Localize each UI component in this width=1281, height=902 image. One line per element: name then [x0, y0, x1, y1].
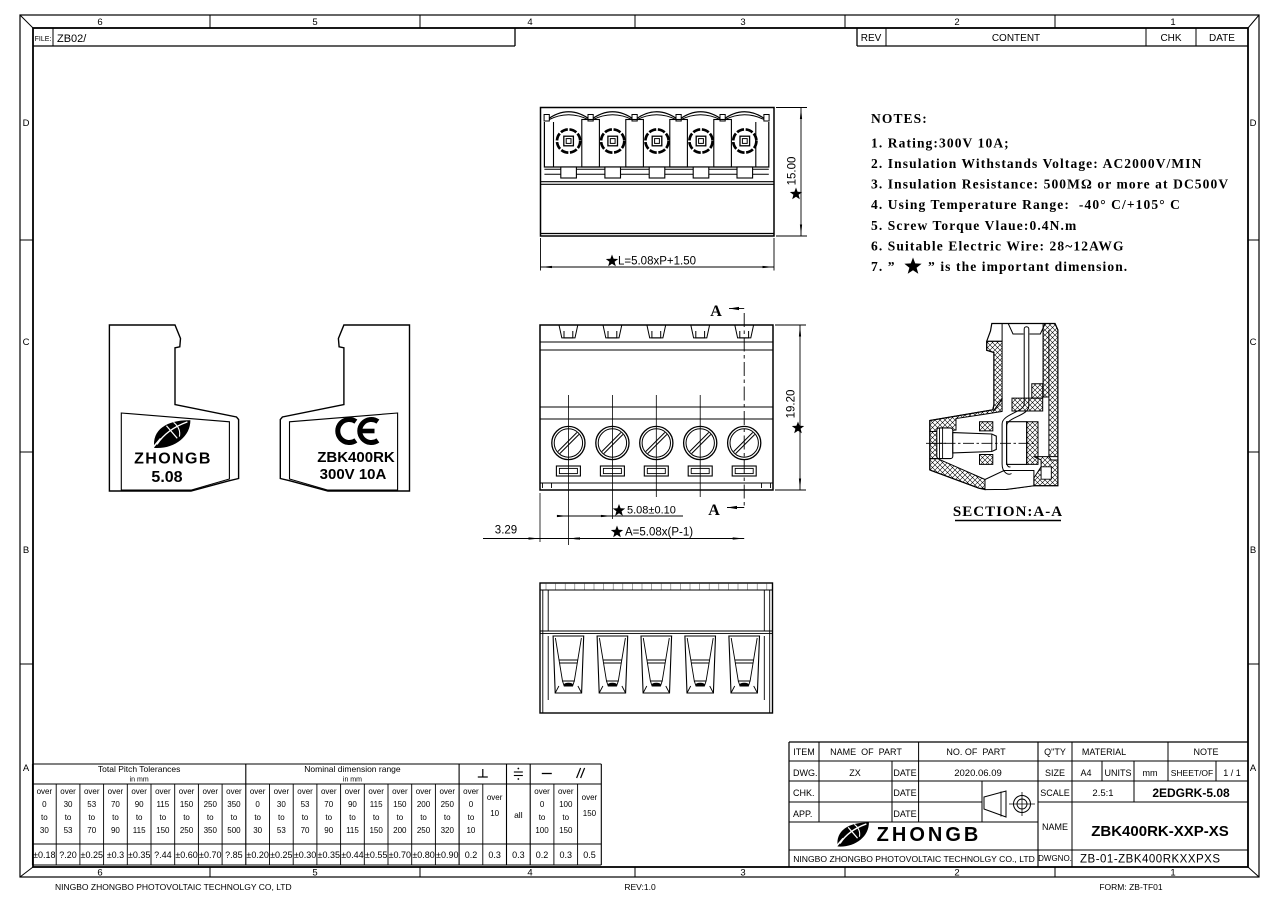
- svg-text:±0.30: ±0.30: [294, 850, 316, 860]
- svg-text:to: to: [231, 813, 238, 822]
- svg-text:A: A: [708, 502, 720, 519]
- svg-text:?.44: ?.44: [154, 850, 172, 860]
- svg-text:70: 70: [324, 800, 333, 809]
- svg-text:0.2: 0.2: [465, 850, 478, 860]
- svg-text:0: 0: [469, 800, 474, 809]
- svg-text:±0.90: ±0.90: [436, 850, 458, 860]
- svg-text:in mm: in mm: [343, 777, 362, 784]
- svg-text:DATE: DATE: [1209, 33, 1235, 44]
- svg-text:±0.3: ±0.3: [107, 850, 124, 860]
- svg-text:3: 3: [740, 868, 745, 879]
- svg-text:D: D: [23, 118, 30, 129]
- svg-text:ITEM: ITEM: [793, 747, 815, 757]
- svg-text:C: C: [23, 337, 30, 348]
- svg-text:53: 53: [277, 826, 286, 835]
- svg-text:53: 53: [301, 800, 310, 809]
- svg-text:to: to: [397, 813, 404, 822]
- svg-text:in mm: in mm: [130, 777, 149, 784]
- svg-text:350: 350: [204, 826, 218, 835]
- svg-text:to: to: [112, 813, 119, 822]
- svg-text:500: 500: [227, 826, 241, 835]
- svg-text:2. Insulation Withstands Volta: 2. Insulation Withstands Voltage: AC2000…: [871, 156, 1202, 171]
- svg-text:Total Pitch Tolerances: Total Pitch Tolerances: [98, 764, 181, 774]
- svg-text:to: to: [278, 813, 285, 822]
- svg-text:over: over: [463, 787, 479, 796]
- svg-text:mm: mm: [1143, 768, 1158, 778]
- svg-text:5.08: 5.08: [151, 469, 182, 486]
- svg-text:over: over: [60, 787, 76, 796]
- svg-text:to: to: [420, 813, 427, 822]
- svg-text:over: over: [345, 787, 361, 796]
- svg-text:over: over: [368, 787, 384, 796]
- svg-text:to: to: [373, 813, 380, 822]
- svg-text:300V 10A: 300V 10A: [320, 466, 387, 483]
- svg-text:to: to: [160, 813, 167, 822]
- svg-text:0.2: 0.2: [536, 850, 549, 860]
- svg-text:ZX: ZX: [849, 768, 861, 778]
- svg-text:L=5.08xP+1.50: L=5.08xP+1.50: [618, 256, 696, 268]
- svg-text:1: 1: [1170, 17, 1175, 28]
- svg-text:over: over: [108, 787, 124, 796]
- svg-text:NINGBO ZHONGBO PHOTOVOLTAIC TE: NINGBO ZHONGBO PHOTOVOLTAIC TECHNOLGY CO…: [793, 854, 1035, 864]
- svg-text:to: to: [562, 813, 569, 822]
- svg-text:to: to: [41, 813, 48, 822]
- svg-text:70: 70: [87, 826, 96, 835]
- svg-text:DATE: DATE: [893, 788, 916, 798]
- svg-text:320: 320: [441, 826, 455, 835]
- svg-text:5. Screw Torque Vlaue:0.4N.m: 5. Screw Torque Vlaue:0.4N.m: [871, 218, 1077, 233]
- svg-text:90: 90: [111, 826, 120, 835]
- svg-text:ZBK400RK: ZBK400RK: [317, 449, 395, 466]
- svg-text:6: 6: [97, 17, 102, 28]
- svg-text:over: over: [439, 787, 455, 796]
- svg-text:to: to: [65, 813, 72, 822]
- svg-text:CHK.: CHK.: [793, 788, 815, 798]
- svg-text:5.08±0.10: 5.08±0.10: [627, 505, 676, 517]
- svg-text:B: B: [1250, 545, 1256, 556]
- svg-text:A: A: [23, 763, 30, 774]
- svg-text:to: to: [302, 813, 309, 822]
- svg-text:350: 350: [227, 800, 241, 809]
- svg-text:D: D: [1250, 118, 1257, 129]
- svg-text:±0.35: ±0.35: [128, 850, 150, 860]
- svg-text:to: to: [325, 813, 332, 822]
- svg-text:Nominal dimension range: Nominal dimension range: [304, 764, 401, 774]
- svg-text:0.5: 0.5: [583, 850, 596, 860]
- svg-text:30: 30: [40, 826, 49, 835]
- svg-text:over: over: [297, 787, 313, 796]
- svg-text:ZHONGB: ZHONGB: [134, 451, 212, 468]
- svg-text:A: A: [1250, 763, 1257, 774]
- svg-text:REV: REV: [861, 33, 882, 44]
- svg-text:90: 90: [324, 826, 333, 835]
- svg-text:150: 150: [583, 809, 597, 818]
- svg-text:150: 150: [180, 800, 194, 809]
- svg-text:over: over: [274, 787, 290, 796]
- svg-text:10: 10: [466, 826, 475, 835]
- svg-text:to: to: [444, 813, 451, 822]
- svg-text:2.5:1: 2.5:1: [1092, 788, 1113, 799]
- svg-text:A4: A4: [1080, 768, 1091, 778]
- svg-text:±0.80: ±0.80: [412, 850, 434, 860]
- svg-text:NAME OF PART: NAME OF PART: [830, 747, 902, 757]
- svg-text:SIZE: SIZE: [1045, 768, 1065, 778]
- svg-text:19.20: 19.20: [786, 390, 798, 419]
- svg-text:ZB02/: ZB02/: [57, 33, 87, 45]
- svg-text:APP.: APP.: [793, 809, 812, 819]
- svg-text:115: 115: [133, 826, 146, 835]
- svg-text:B: B: [23, 545, 29, 556]
- svg-text:30: 30: [64, 800, 73, 809]
- svg-text:115: 115: [346, 826, 359, 835]
- svg-text:3.29: 3.29: [495, 525, 517, 537]
- svg-text:±0.18: ±0.18: [33, 850, 55, 860]
- svg-text:DWGNO.: DWGNO.: [1038, 854, 1072, 863]
- svg-text:150: 150: [369, 826, 383, 835]
- svg-text:53: 53: [64, 826, 73, 835]
- svg-text:to: to: [539, 813, 546, 822]
- svg-text:to: to: [88, 813, 95, 822]
- svg-text:ZBK400RK-XXP-XS: ZBK400RK-XXP-XS: [1091, 823, 1229, 840]
- svg-text:6: 6: [97, 868, 102, 879]
- svg-text:5: 5: [312, 868, 317, 879]
- svg-text:90: 90: [135, 800, 144, 809]
- svg-text:to: to: [183, 813, 190, 822]
- svg-text:to: to: [136, 813, 143, 822]
- svg-text:30: 30: [253, 826, 262, 835]
- svg-text:0: 0: [255, 800, 260, 809]
- svg-text:to: to: [349, 813, 356, 822]
- svg-text:200: 200: [393, 826, 407, 835]
- svg-text:5: 5: [312, 17, 317, 28]
- svg-text:to: to: [207, 813, 214, 822]
- svg-text:over: over: [321, 787, 337, 796]
- svg-text:2EDGRK-5.08: 2EDGRK-5.08: [1152, 786, 1230, 800]
- svg-text:0: 0: [42, 800, 47, 809]
- svg-text:over: over: [534, 787, 550, 796]
- svg-text:over: over: [131, 787, 147, 796]
- svg-text:250: 250: [204, 800, 218, 809]
- svg-text:DATE: DATE: [893, 809, 916, 819]
- svg-text:3: 3: [740, 17, 745, 28]
- svg-text:A=5.08x(P-1): A=5.08x(P-1): [625, 527, 693, 539]
- svg-text:±0.70: ±0.70: [389, 850, 411, 860]
- svg-text:over: over: [250, 787, 266, 796]
- svg-text:over: over: [487, 793, 503, 802]
- svg-text:?.85: ?.85: [225, 850, 243, 860]
- svg-text:1 / 1: 1 / 1: [1223, 768, 1241, 778]
- svg-text:over: over: [582, 793, 598, 802]
- svg-text:Q"TY: Q"TY: [1044, 747, 1066, 757]
- svg-text:150: 150: [156, 826, 170, 835]
- svg-text:±0.20: ±0.20: [246, 850, 268, 860]
- svg-text:53: 53: [87, 800, 96, 809]
- svg-text:NOTE: NOTE: [1193, 747, 1218, 757]
- svg-text:NO. OF PART: NO. OF PART: [946, 747, 1006, 757]
- svg-text:over: over: [226, 787, 242, 796]
- svg-text:±0.44: ±0.44: [341, 850, 363, 860]
- svg-text:NAME: NAME: [1042, 822, 1068, 832]
- svg-text:over: over: [155, 787, 171, 796]
- svg-text:FORM: ZB-TF01: FORM: ZB-TF01: [1099, 882, 1163, 892]
- svg-text:200: 200: [417, 800, 431, 809]
- svg-text:REV:1.0: REV:1.0: [624, 882, 656, 892]
- svg-text:250: 250: [417, 826, 431, 835]
- svg-text:?.20: ?.20: [59, 850, 77, 860]
- svg-text:0: 0: [540, 800, 545, 809]
- svg-text:” is the important dimension.: ” is the important dimension.: [928, 259, 1128, 274]
- svg-text:3. Insulation Resistance: 500M: 3. Insulation Resistance: 500MΩ or more …: [871, 177, 1229, 192]
- svg-text:±0.60: ±0.60: [175, 850, 197, 860]
- svg-text:C: C: [1250, 337, 1257, 348]
- svg-text:100: 100: [535, 826, 549, 835]
- svg-text:to: to: [254, 813, 261, 822]
- svg-text:over: over: [392, 787, 408, 796]
- svg-text:30: 30: [277, 800, 286, 809]
- svg-text:over: over: [179, 787, 195, 796]
- svg-text:150: 150: [559, 826, 573, 835]
- svg-text:1. Rating:300V 10A;: 1. Rating:300V 10A;: [871, 136, 1010, 151]
- svg-text:2: 2: [954, 17, 959, 28]
- svg-text:CHK: CHK: [1160, 33, 1181, 44]
- svg-text:15.00: 15.00: [787, 157, 799, 186]
- svg-text:90: 90: [348, 800, 357, 809]
- svg-text:UNITS: UNITS: [1105, 768, 1132, 778]
- svg-text:NOTES:: NOTES:: [871, 111, 928, 126]
- svg-text:DWG.: DWG.: [793, 768, 818, 778]
- svg-text:SECTION:A-A: SECTION:A-A: [953, 504, 1063, 520]
- svg-text:100: 100: [559, 800, 573, 809]
- svg-text:1: 1: [1170, 868, 1175, 879]
- svg-text:250: 250: [441, 800, 455, 809]
- svg-text:over: over: [558, 787, 574, 796]
- svg-text:FILE:: FILE:: [35, 36, 52, 43]
- svg-text:70: 70: [111, 800, 120, 809]
- svg-text:0.3: 0.3: [512, 850, 525, 860]
- svg-text:±0.25: ±0.25: [81, 850, 103, 860]
- svg-text:all: all: [514, 810, 523, 820]
- svg-text:ZB-01-ZBK400RKXXPXS: ZB-01-ZBK400RKXXPXS: [1080, 854, 1221, 866]
- svg-text:±0.55: ±0.55: [365, 850, 387, 860]
- svg-text:0.3: 0.3: [488, 850, 501, 860]
- svg-text:to: to: [468, 813, 475, 822]
- svg-text:A: A: [710, 303, 722, 320]
- svg-text:115: 115: [370, 800, 383, 809]
- svg-text:4. Using Temperature Range: -: 4. Using Temperature Range: -40° C/+105°…: [871, 197, 1181, 212]
- svg-text:CONTENT: CONTENT: [992, 33, 1040, 44]
- svg-text:10: 10: [490, 809, 499, 818]
- svg-text:NINGBO ZHONGBO PHOTOVOLTAIC TE: NINGBO ZHONGBO PHOTOVOLTAIC TECHNOLGY CO…: [55, 882, 292, 892]
- svg-text:4: 4: [527, 868, 532, 879]
- svg-text:115: 115: [156, 800, 169, 809]
- svg-text:over: over: [84, 787, 100, 796]
- svg-text:±0.25: ±0.25: [270, 850, 292, 860]
- svg-text:MATERIAL: MATERIAL: [1082, 747, 1126, 757]
- svg-text:250: 250: [180, 826, 194, 835]
- svg-text:2: 2: [954, 868, 959, 879]
- svg-text:70: 70: [301, 826, 310, 835]
- svg-text:0.3: 0.3: [559, 850, 572, 860]
- svg-text:ZHONGB: ZHONGB: [877, 824, 982, 846]
- svg-text:±0.35: ±0.35: [318, 850, 340, 860]
- svg-text:6. Suitable Electric Wire: 28~: 6. Suitable Electric Wire: 28~12AWG: [871, 239, 1125, 254]
- svg-text:150: 150: [393, 800, 407, 809]
- svg-text:4: 4: [527, 17, 532, 28]
- svg-text:±0.70: ±0.70: [199, 850, 221, 860]
- svg-text:SHEET/OF: SHEET/OF: [1171, 768, 1214, 778]
- svg-text:DATE: DATE: [893, 768, 916, 778]
- svg-text:over: over: [416, 787, 432, 796]
- svg-text:7. ”: 7. ”: [871, 259, 896, 274]
- svg-text:2020.06.09: 2020.06.09: [954, 768, 1002, 779]
- svg-text:over: over: [37, 787, 53, 796]
- svg-text:over: over: [202, 787, 218, 796]
- svg-text:SCALE: SCALE: [1040, 788, 1070, 798]
